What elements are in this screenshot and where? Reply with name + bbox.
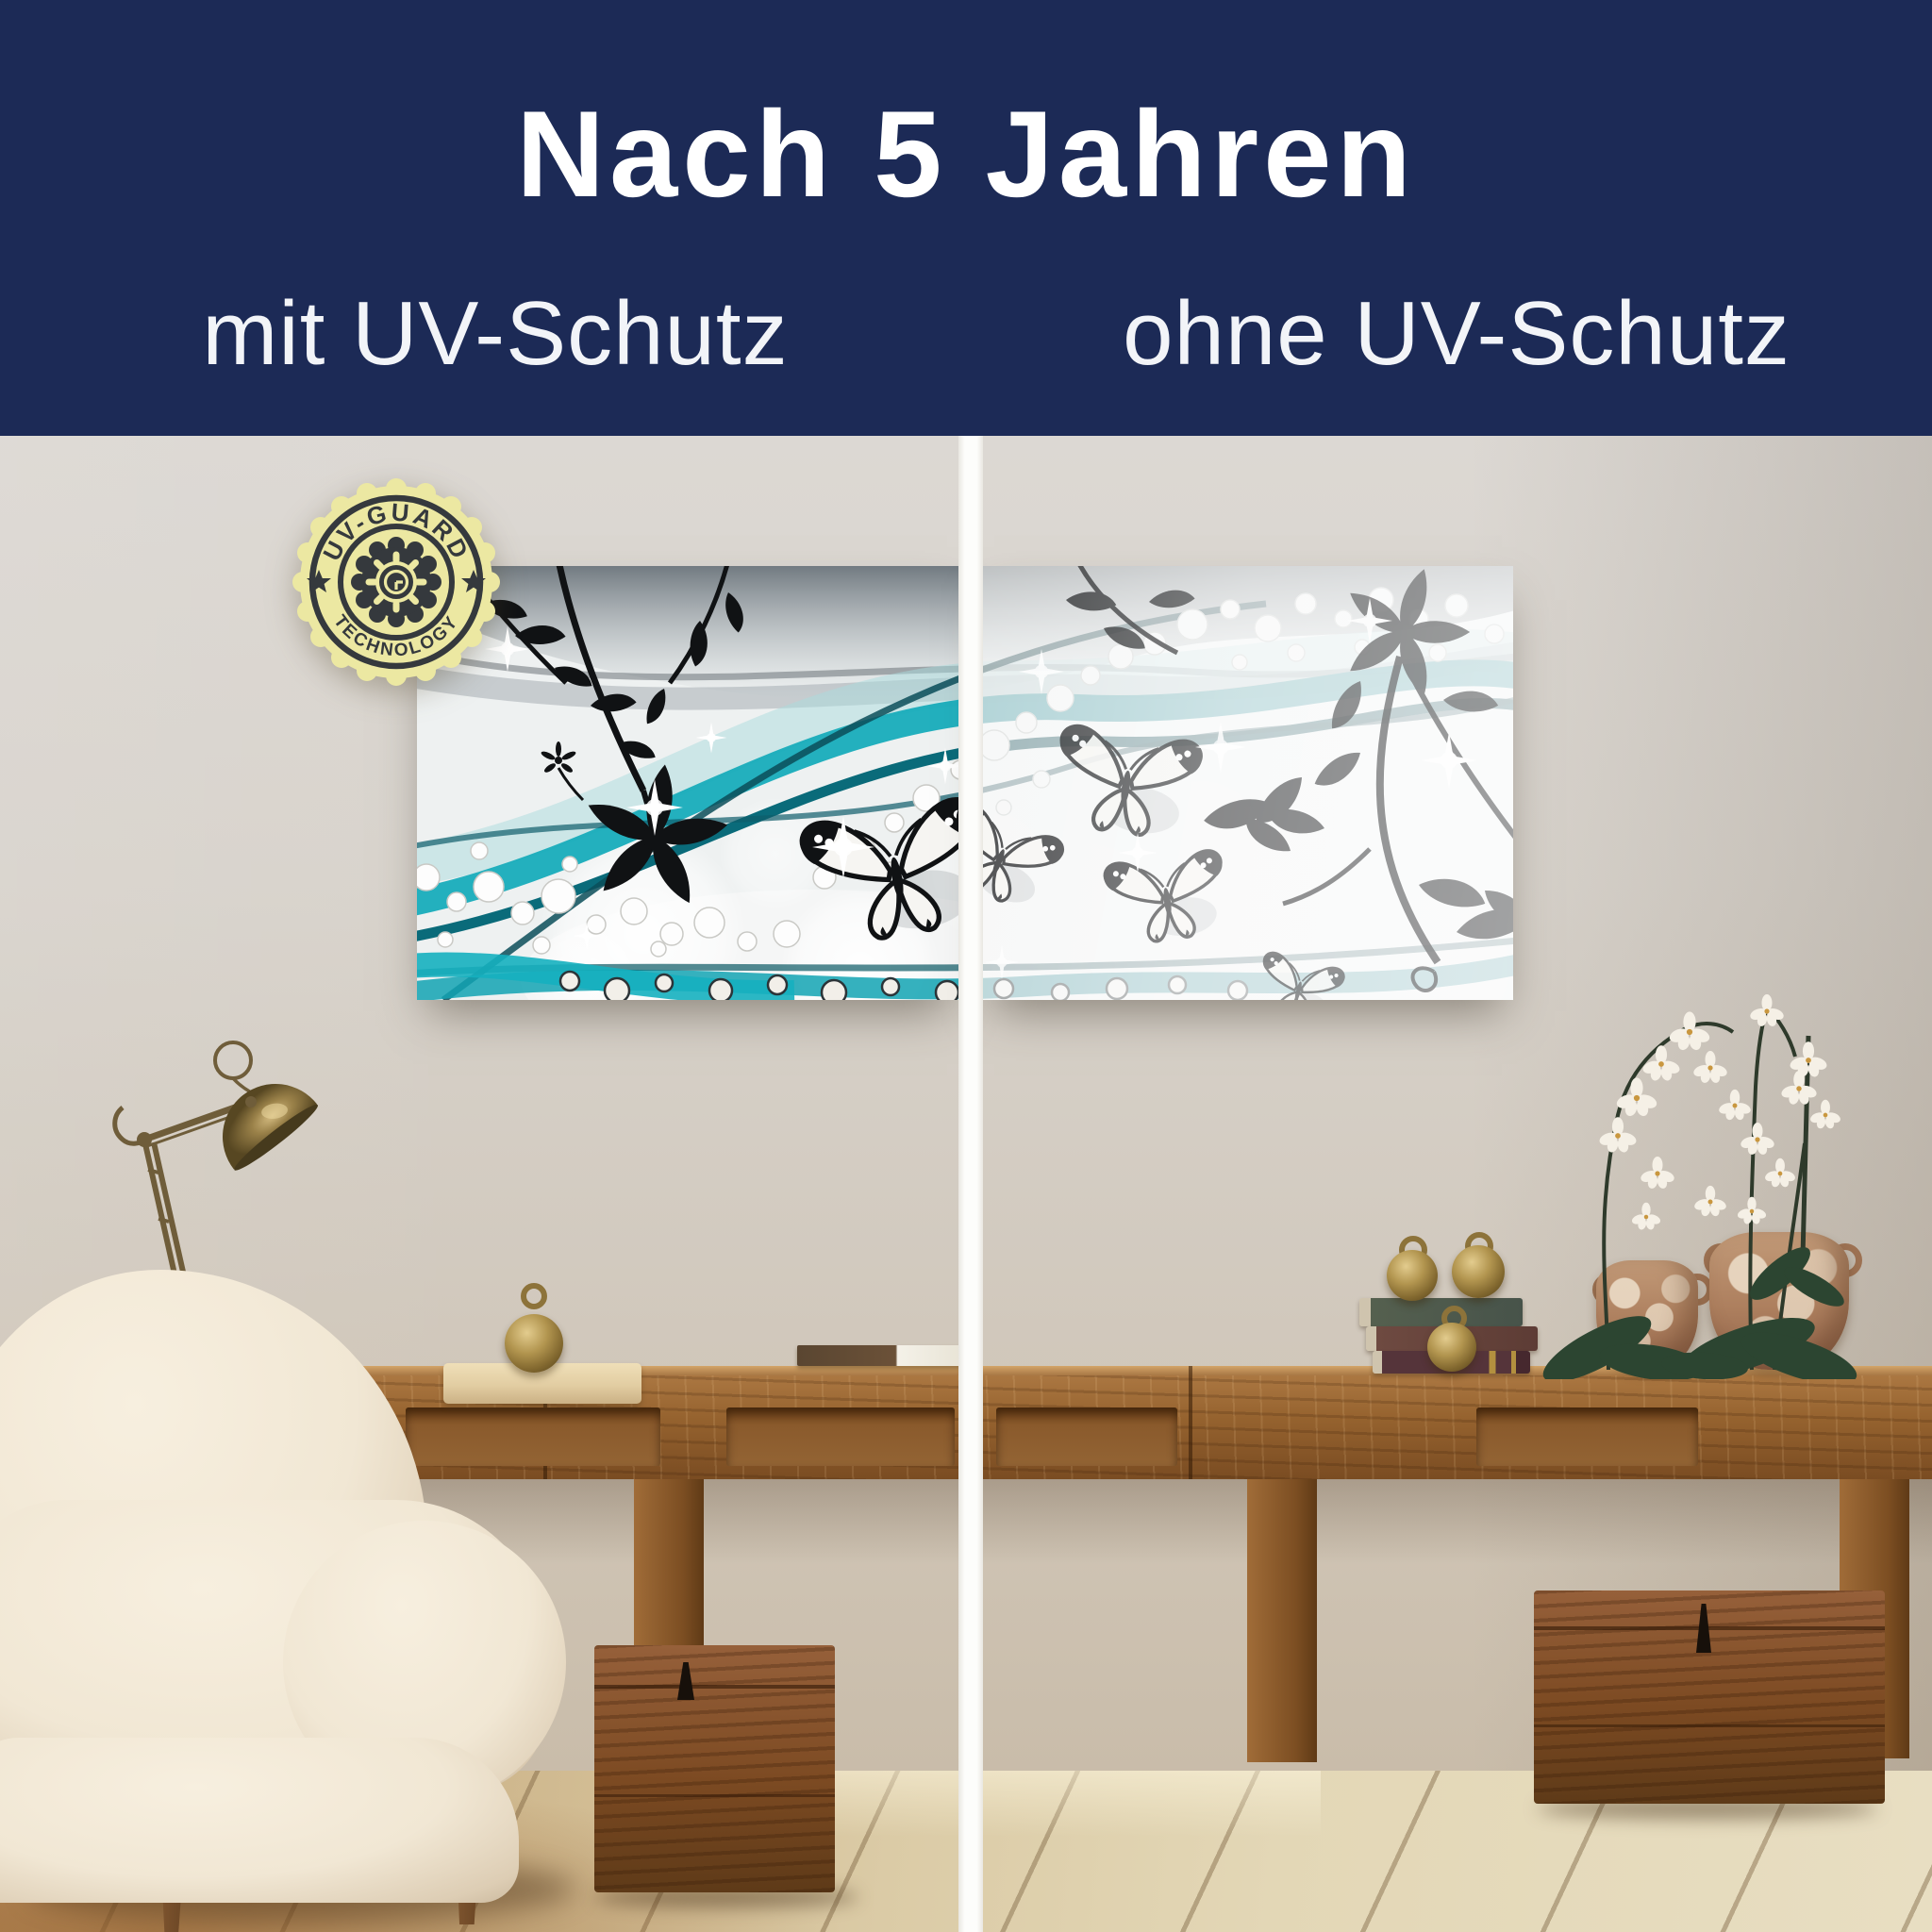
orchid-leaves bbox=[1535, 1240, 1862, 1379]
label-without-uv: ohne UV-Schutz bbox=[981, 287, 1932, 381]
header-banner: Nach 5 Jahren mit UV-Schutz ohne UV-Schu… bbox=[0, 0, 1932, 436]
wooden-chest-left bbox=[594, 1645, 835, 1892]
table-leg bbox=[634, 1479, 704, 1645]
table-drawer bbox=[996, 1407, 1177, 1466]
white-orchids bbox=[1467, 974, 1891, 1379]
armchair-base bbox=[0, 1738, 519, 1903]
product-marketing-image: Nach 5 Jahren mit UV-Schutz ohne UV-Schu… bbox=[0, 0, 1932, 1932]
lamp-wire-loop bbox=[215, 1042, 251, 1078]
brass-bell bbox=[505, 1314, 563, 1373]
bell-ring bbox=[521, 1283, 547, 1309]
fade-overlay bbox=[983, 566, 1513, 1000]
desk-lamp bbox=[57, 1002, 358, 1285]
wooden-chest-right bbox=[1534, 1591, 1885, 1804]
keyhole bbox=[677, 1662, 694, 1700]
lamp-joint bbox=[137, 1132, 152, 1147]
uv-guard-badge: UV-GUARD TECHNOLOGY bbox=[288, 474, 505, 691]
table-seam bbox=[1189, 1366, 1192, 1479]
canvas-without-uv-protection bbox=[983, 566, 1513, 1000]
page-title: Nach 5 Jahren bbox=[0, 91, 1932, 217]
chest-lid-line bbox=[594, 1685, 835, 1689]
table-drawer bbox=[406, 1407, 660, 1466]
table-drawer bbox=[726, 1407, 955, 1466]
table-leg bbox=[1247, 1479, 1317, 1762]
table-wall-shadow bbox=[332, 1479, 1932, 1564]
book-on-table bbox=[797, 1345, 976, 1366]
brass-bell bbox=[1387, 1250, 1438, 1301]
lamp-joint bbox=[245, 1096, 257, 1108]
lamp-shade bbox=[201, 1062, 322, 1174]
label-with-uv: mit UV-Schutz bbox=[0, 287, 991, 381]
comparison-divider bbox=[958, 436, 983, 1932]
chest-seam bbox=[594, 1794, 835, 1797]
chest-lid-line bbox=[1534, 1626, 1885, 1630]
chest-seam bbox=[1534, 1724, 1885, 1727]
table-drawer bbox=[1476, 1407, 1698, 1466]
room-photo: UV-GUARD TECHNOLOGY bbox=[0, 436, 1932, 1932]
